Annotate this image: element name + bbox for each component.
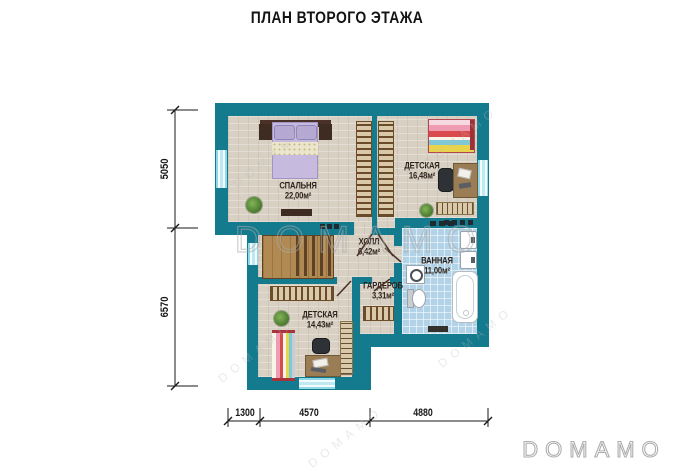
nursery2-desk [305, 355, 341, 377]
plant [246, 197, 262, 213]
dim-left-top: 5050 [159, 159, 171, 180]
room-name: ДЕТСКАЯ [302, 310, 337, 320]
nursery2-window [299, 378, 335, 389]
drain [463, 310, 469, 316]
paper [457, 168, 472, 180]
room-area: 3,31м² [363, 291, 403, 301]
room-area: 14,43м² [302, 320, 337, 330]
room-name: ГАРДЕРОБ [363, 281, 403, 291]
wardrobe-room-rail [363, 306, 394, 321]
nursery1-shelf [436, 202, 474, 215]
brand-logo: DOMAMO [522, 437, 665, 463]
watermark-large: DOMAMO [235, 219, 490, 261]
room-area: 11,00м² [421, 266, 453, 276]
nursery2-chair [312, 338, 330, 354]
dim-left-bottom: 6570 [159, 297, 171, 318]
room-name: СПАЛЬНЯ [279, 181, 316, 191]
room-label-wardrobe: ГАРДЕРОБ 3,31м² [363, 281, 403, 302]
room-area: 16,48м² [404, 171, 439, 181]
laptop [311, 367, 326, 373]
floor-plan-page: ПЛАН ВТОРОГО ЭТАЖА [0, 0, 674, 470]
bedroom-window [216, 150, 227, 188]
laptop [459, 182, 472, 189]
bedroom-nightstand-left [259, 124, 272, 140]
page-title: ПЛАН ВТОРОГО ЭТАЖА [251, 8, 423, 28]
bedroom-nightstand-right [319, 124, 332, 140]
bath-mat [428, 326, 448, 332]
nursery1-window [478, 160, 488, 196]
dim-bottom-1: 1300 [235, 407, 255, 419]
nursery1-wardrobe-rail [378, 121, 394, 217]
nursery1-desk [453, 163, 478, 198]
nursery2-wardrobe-rail [270, 286, 334, 301]
plant [420, 204, 433, 217]
room-area: 22,00м² [279, 191, 316, 201]
bedroom-dresser [281, 209, 312, 216]
room-label-nursery2: ДЕТСКАЯ 14,43м² [302, 310, 337, 331]
nursery2-shelf [340, 321, 353, 375]
room-label-bedroom: СПАЛЬНЯ 22,00м² [279, 181, 316, 202]
toilet-bowl [412, 289, 426, 308]
dim-bottom-3: 4880 [413, 407, 433, 419]
dim-bottom-2: 4570 [299, 407, 319, 419]
bathtub [452, 271, 478, 323]
nursery1-chair [438, 168, 454, 192]
nursery2-door-opening [337, 277, 352, 284]
bedroom-wardrobe-rail [356, 121, 372, 217]
